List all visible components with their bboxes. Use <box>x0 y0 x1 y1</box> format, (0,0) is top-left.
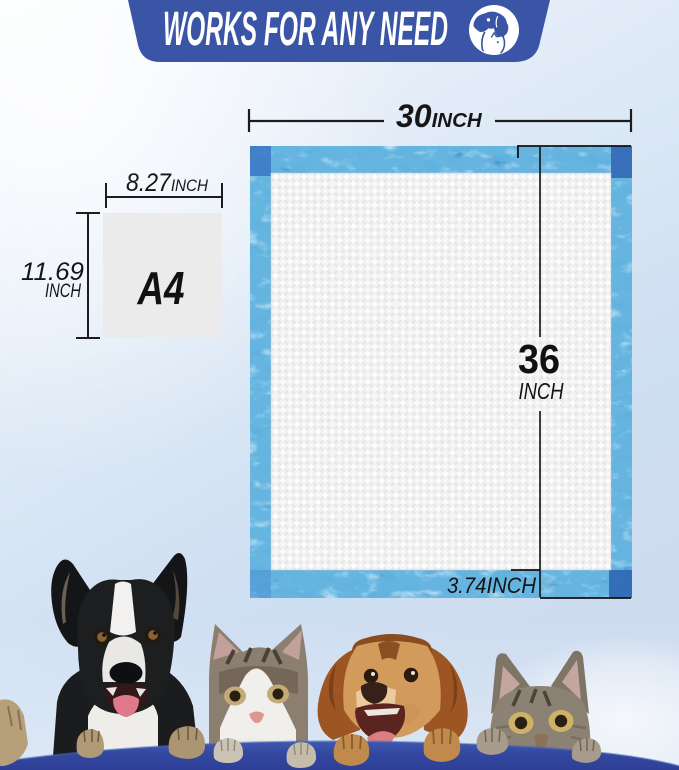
svg-text:INCH: INCH <box>45 281 81 302</box>
svg-text:WORKS FOR ANY NEED: WORKS FOR ANY NEED <box>163 3 448 56</box>
svg-text:A4: A4 <box>137 262 185 314</box>
svg-text:3.74INCH: 3.74INCH <box>447 573 536 598</box>
svg-text:36: 36 <box>518 336 560 382</box>
svg-text:INCH: INCH <box>519 378 564 404</box>
